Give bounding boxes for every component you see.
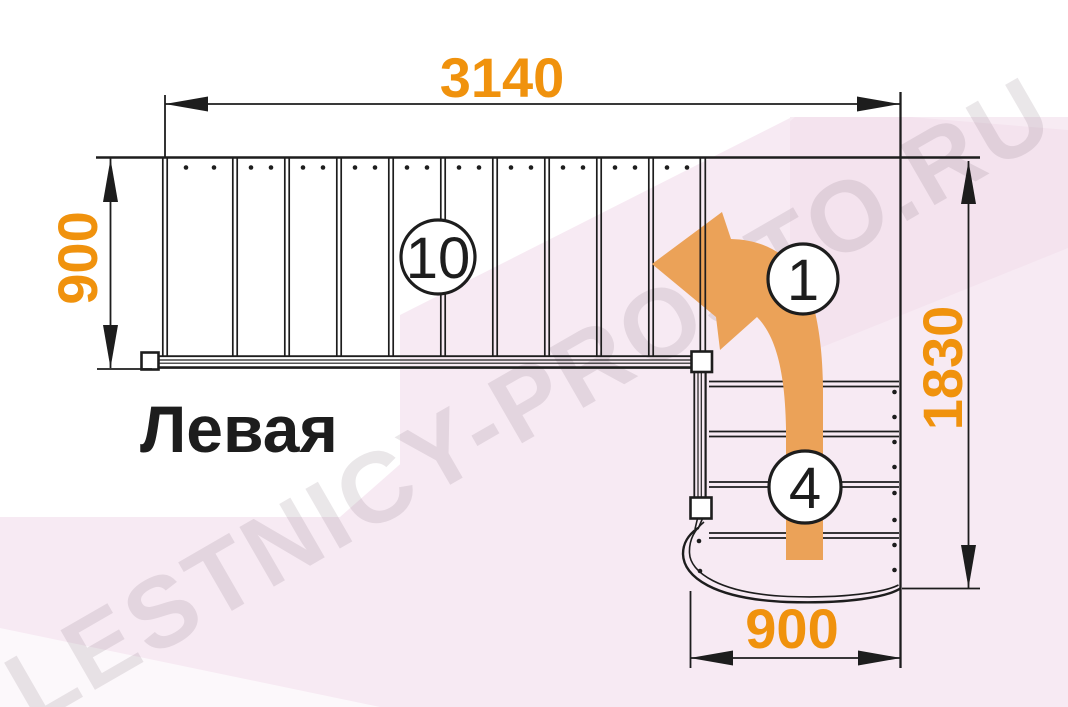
step-count-label: 10 <box>406 226 471 291</box>
dimension-left-depth: 900 <box>46 158 152 369</box>
stair-plan-page: LESTNICY-PROSTO.RU <box>0 0 1068 707</box>
dimension-right-height: 1830 <box>902 161 980 589</box>
plan-title: Левая <box>140 392 338 466</box>
dimension-label-bottom: 900 <box>745 597 838 660</box>
handrail-lines <box>694 372 705 499</box>
step-count-upper: 10 <box>401 220 475 294</box>
dimension-label-top: 3140 <box>440 46 565 109</box>
handrail-lines <box>147 356 692 367</box>
dimension-label-right: 1830 <box>911 306 974 431</box>
dim-arrow-up <box>961 161 976 204</box>
dim-arrow-left <box>690 651 733 666</box>
newel-post-left <box>142 353 159 370</box>
dimension-bottom-width: 900 <box>690 591 901 668</box>
newel-post-corner <box>692 352 713 373</box>
dim-arrow-left <box>165 97 208 112</box>
step-count-lower: 4 <box>769 451 841 523</box>
upper-tread-dots <box>184 165 690 170</box>
dim-arrow-up <box>103 159 118 202</box>
step-count-turn: 1 <box>768 244 838 314</box>
newel-post-bottom <box>691 498 712 519</box>
dim-arrow-down <box>103 325 118 368</box>
upper-flight <box>96 158 980 357</box>
dim-arrow-down <box>961 545 976 588</box>
dimension-top-width: 3140 <box>165 46 900 157</box>
dimension-label-left: 900 <box>46 211 109 304</box>
stair-plan-drawing: 3140 900 1830 900 10 <box>0 0 1068 707</box>
step-count-label: 1 <box>787 248 819 313</box>
step-count-label: 4 <box>789 456 821 521</box>
handrail-upper-flight <box>142 352 713 373</box>
handrail-lower-flight <box>691 372 712 530</box>
dim-arrow-right <box>857 97 900 112</box>
dim-arrow-right <box>858 651 901 666</box>
